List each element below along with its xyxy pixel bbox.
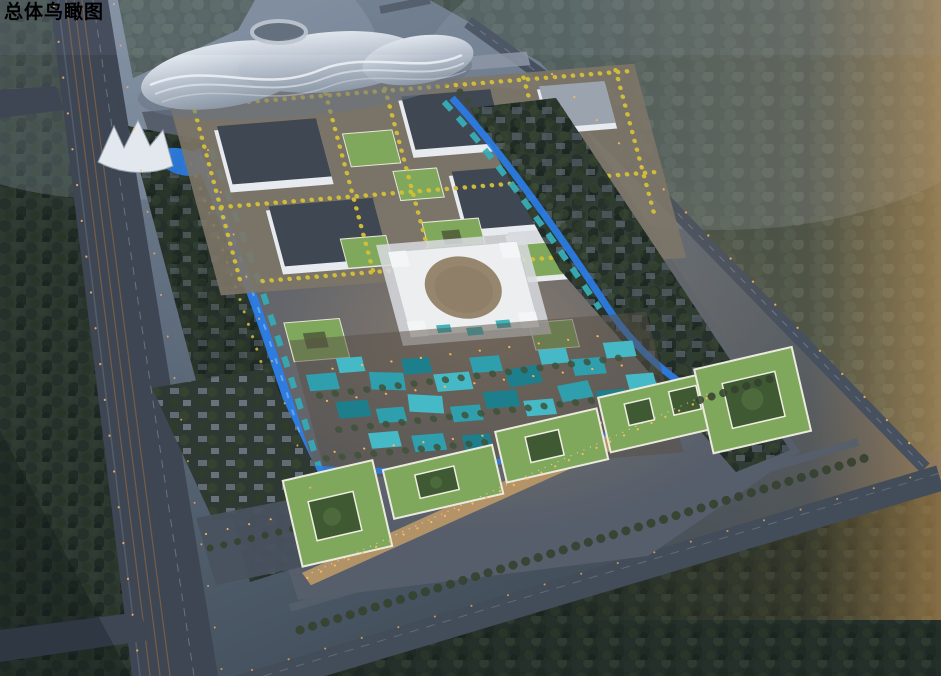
scene-canvas <box>0 0 941 676</box>
top-haze <box>0 0 941 55</box>
page-title: 总体鸟瞰图 <box>4 2 104 25</box>
aerial-rendering: 总体鸟瞰图 <box>0 0 941 676</box>
